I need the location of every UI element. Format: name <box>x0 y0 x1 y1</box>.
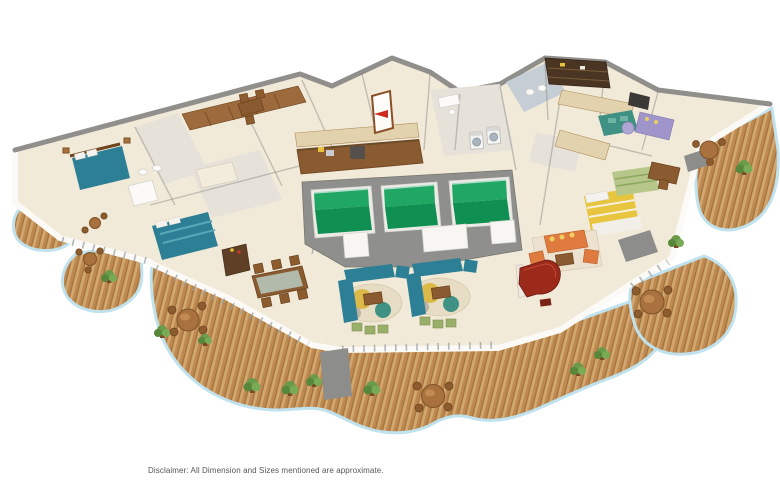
pool-1 <box>311 186 375 238</box>
disclaimer-text: Disclaimer: All Dimension and Sizes ment… <box>148 466 384 475</box>
washing-machine-1 <box>469 132 483 150</box>
kettle <box>318 147 324 152</box>
toilet <box>449 109 456 115</box>
coffee-table <box>555 253 573 266</box>
pool-3 <box>449 177 513 228</box>
pool-2 <box>381 182 441 232</box>
stove <box>350 146 365 159</box>
orange-armchair <box>583 249 599 264</box>
ottoman <box>622 122 634 134</box>
desk-chair <box>658 179 668 189</box>
nightstand <box>63 148 69 153</box>
sink <box>139 169 148 175</box>
sideboard <box>222 244 250 276</box>
kitchen-sink <box>326 150 334 156</box>
sink <box>153 165 162 171</box>
sink <box>526 89 534 95</box>
sink <box>538 85 546 91</box>
coffee-table <box>363 292 382 305</box>
wardrobe-dark-top-right <box>545 58 610 88</box>
floorplan-page: Disclaimer: All Dimension and Sizes ment… <box>0 0 780 490</box>
nightstand <box>124 138 130 143</box>
entrance <box>372 91 393 133</box>
floorplan-render <box>0 0 780 490</box>
washing-machine-2 <box>486 127 500 145</box>
pool-zone <box>302 170 522 267</box>
bedroom-yellow <box>584 188 642 236</box>
